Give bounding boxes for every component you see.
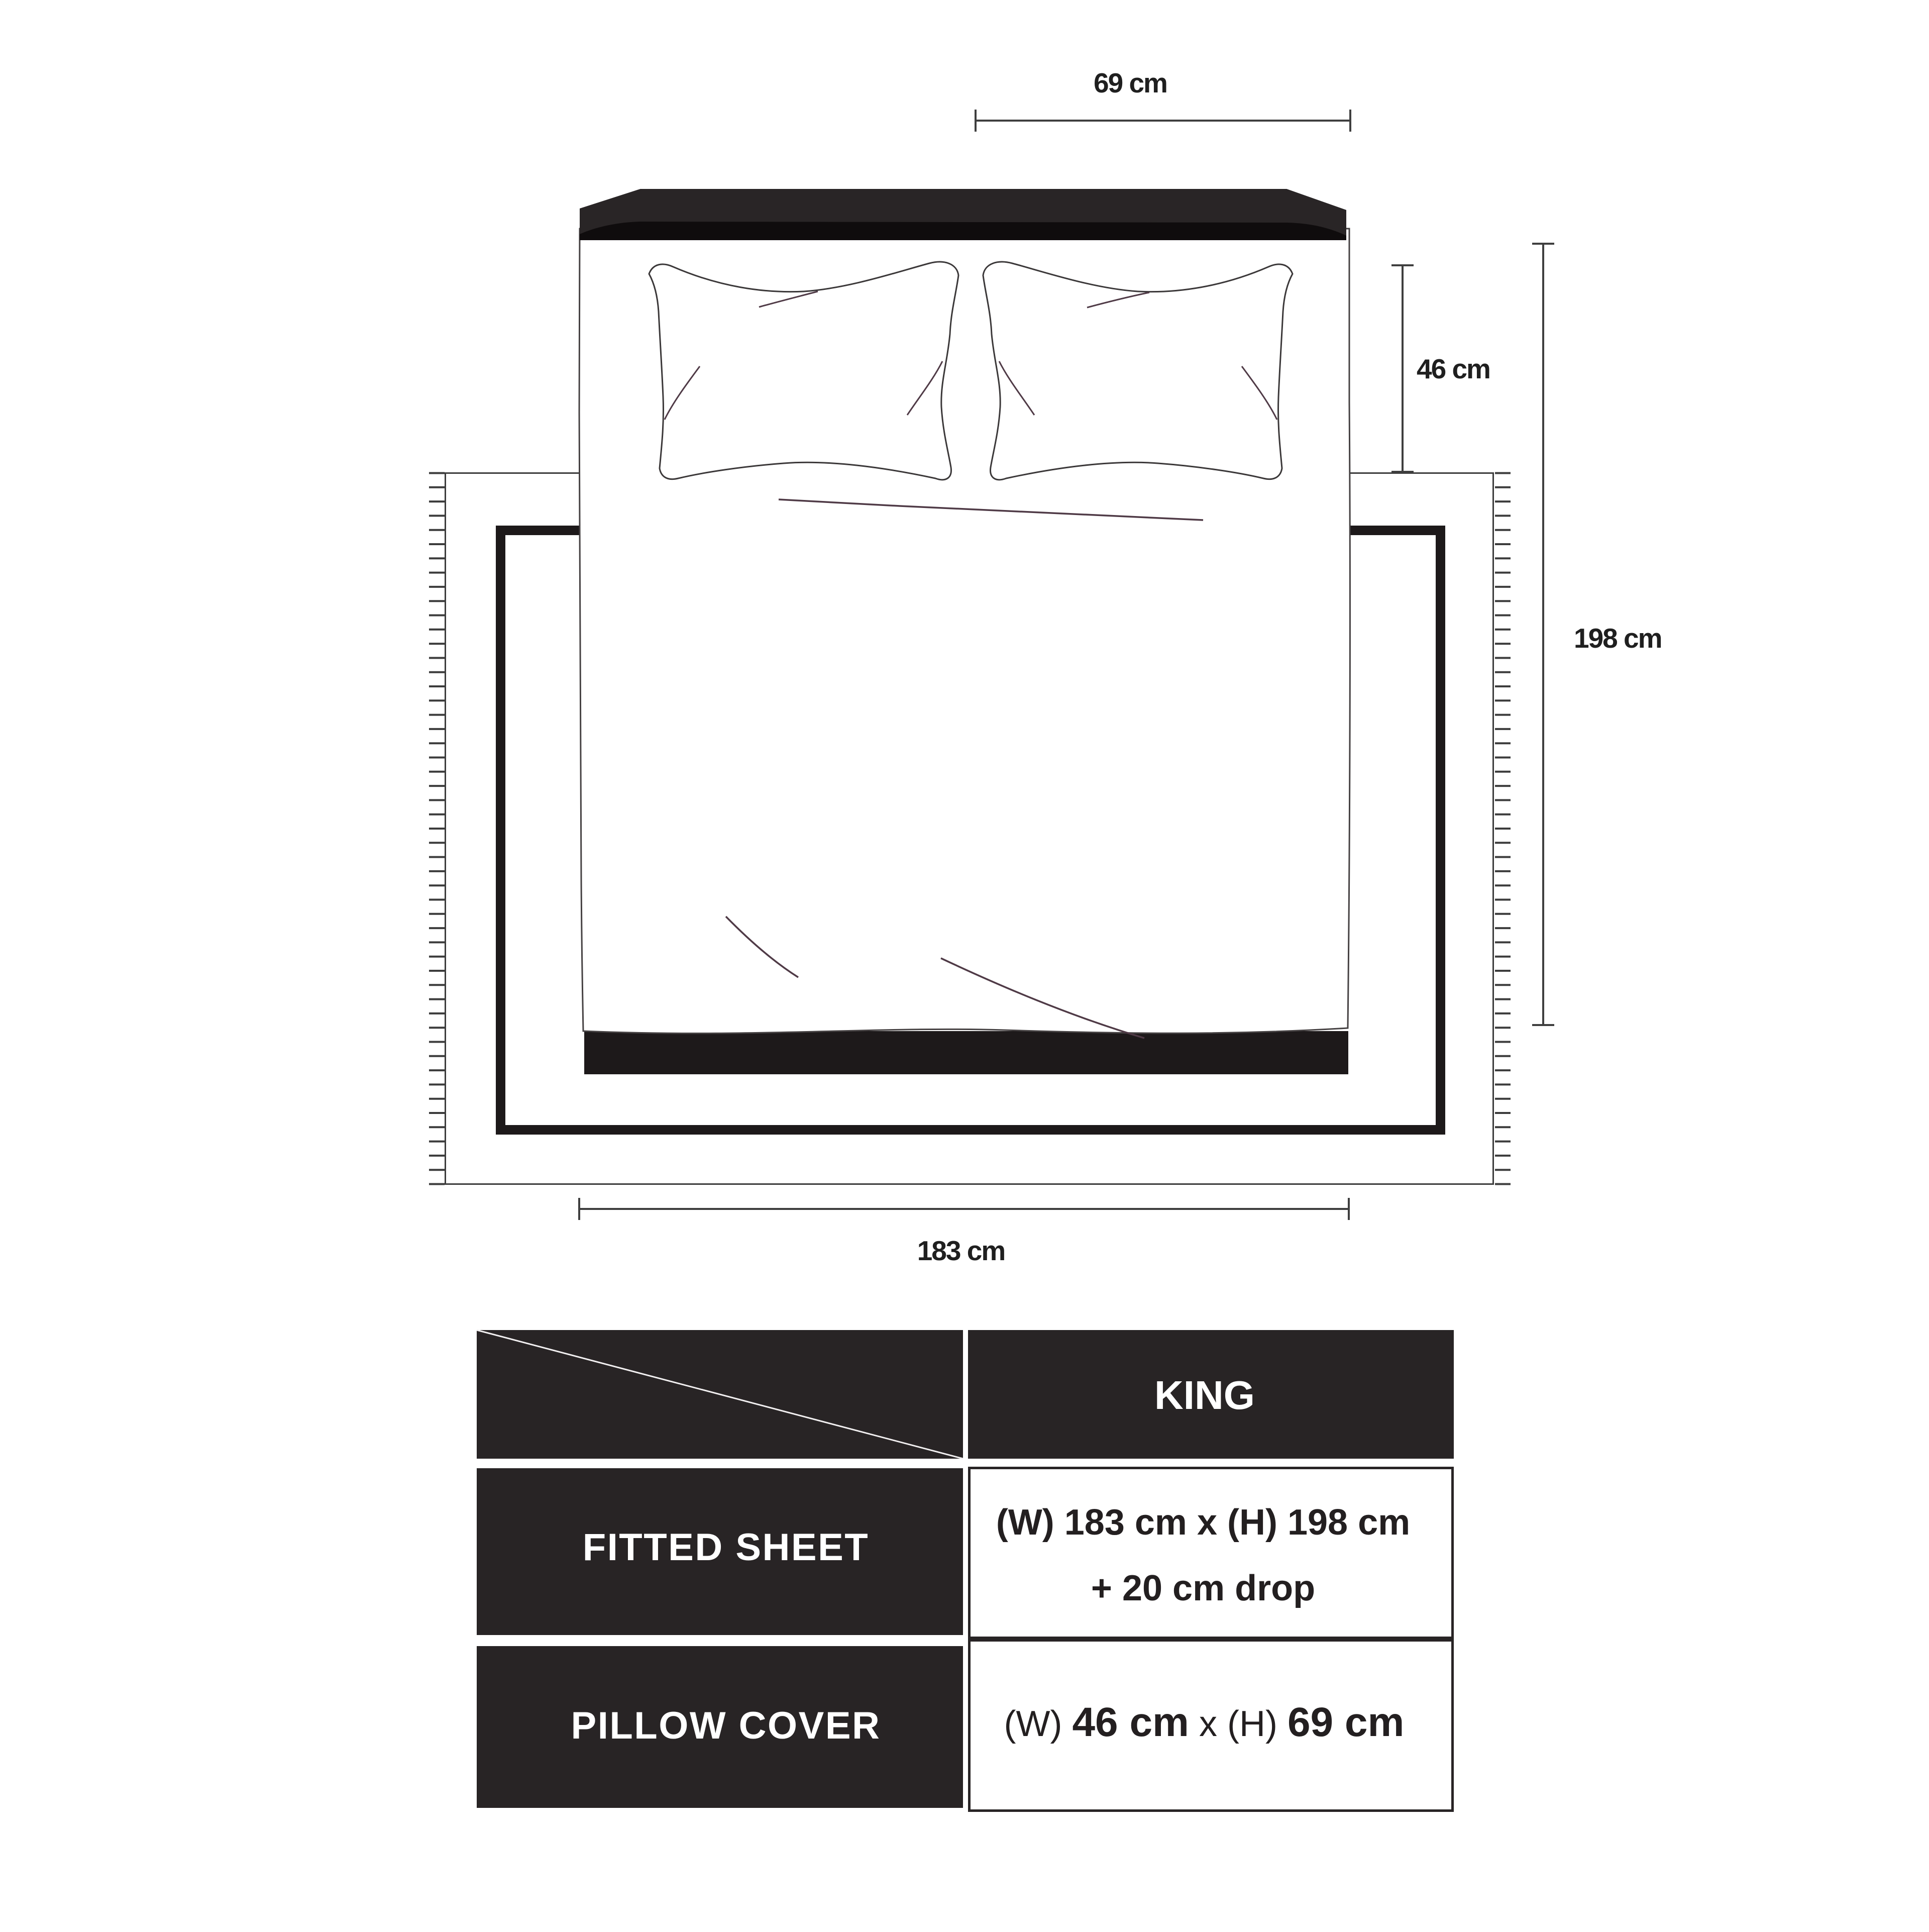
svg-text:198 cm: 198 cm [1574,623,1662,654]
svg-text:FITTED SHEET: FITTED SHEET [583,1526,869,1569]
svg-text:183 cm: 183 cm [917,1235,1005,1266]
svg-text:(W) 183 cm x (H) 198 cm: (W) 183 cm x (H) 198 cm [996,1502,1410,1543]
svg-text:KING: KING [1154,1373,1255,1417]
svg-text:46 cm: 46 cm [1417,353,1490,384]
svg-text:69 cm: 69 cm [1094,67,1167,98]
svg-text:+ 20 cm drop: + 20 cm drop [1091,1568,1315,1608]
svg-text:PILLOW COVER: PILLOW COVER [571,1704,881,1747]
svg-text:(W) 46 cm x (H) 69 cm: (W) 46 cm x (H) 69 cm [1004,1699,1405,1745]
